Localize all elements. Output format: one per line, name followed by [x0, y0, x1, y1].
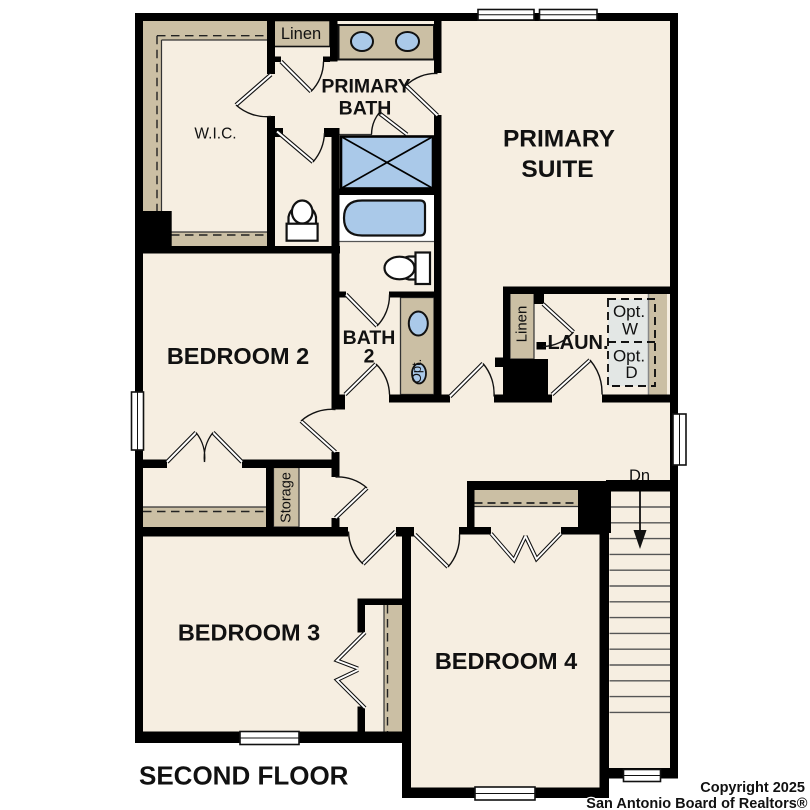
svg-text:Copyright 2025: Copyright 2025: [700, 780, 805, 796]
svg-text:PRIMARY: PRIMARY: [321, 76, 410, 98]
svg-text:Storage: Storage: [278, 472, 294, 523]
svg-text:BEDROOM 4: BEDROOM 4: [435, 648, 577, 674]
svg-text:SECOND FLOOR: SECOND FLOOR: [139, 761, 349, 791]
svg-text:Opt.: Opt.: [613, 302, 645, 321]
svg-text:2: 2: [364, 346, 375, 368]
svg-text:D: D: [625, 363, 637, 382]
svg-text:San Antonio Board of Realtors®: San Antonio Board of Realtors®: [586, 796, 808, 810]
svg-text:BATH: BATH: [339, 98, 392, 120]
svg-text:BEDROOM 3: BEDROOM 3: [178, 620, 320, 646]
svg-text:W.I.C.: W.I.C.: [194, 126, 236, 143]
svg-text:LAUN.: LAUN.: [547, 332, 608, 354]
svg-text:Opt.: Opt.: [409, 359, 424, 384]
svg-text:Linen: Linen: [513, 306, 530, 343]
svg-text:BEDROOM 2: BEDROOM 2: [167, 343, 309, 369]
svg-text:Linen: Linen: [281, 25, 321, 43]
svg-text:W: W: [622, 320, 638, 339]
svg-text:SUITE: SUITE: [521, 156, 593, 183]
svg-text:PRIMARY: PRIMARY: [503, 126, 615, 153]
